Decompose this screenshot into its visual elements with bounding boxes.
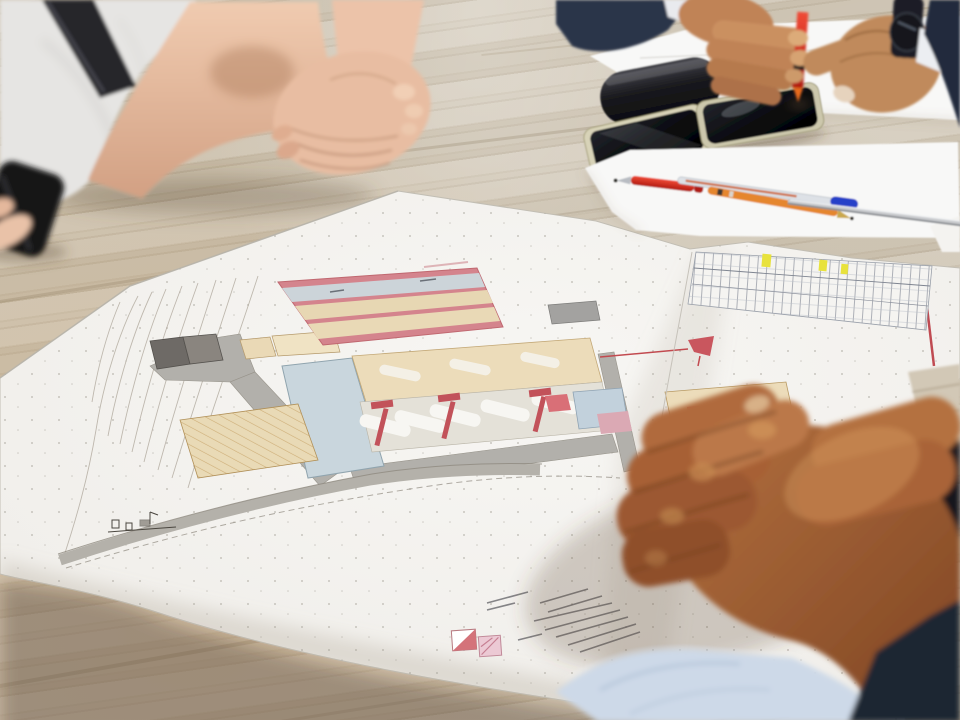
underarm-shadow (210, 46, 294, 98)
person-top-left (0, 0, 445, 214)
knuckle-highlight (660, 508, 684, 524)
scene-artwork (0, 0, 960, 720)
highlight-cell (841, 264, 849, 275)
pen-stripe (717, 189, 723, 196)
knuckle (393, 84, 415, 100)
highlight-cell (818, 260, 827, 272)
pink-block-small (597, 411, 632, 434)
knuckle (401, 123, 417, 135)
gray-building (548, 301, 600, 324)
knuckle-highlight (645, 550, 667, 566)
red-block-small (545, 394, 571, 412)
photo-scene (0, 0, 960, 720)
knuckle-highlight (748, 421, 776, 439)
fingertip (788, 30, 808, 46)
highlight-cell (761, 254, 771, 268)
fingertip (785, 69, 803, 83)
knuckle (405, 104, 423, 118)
legend-swatch-red (451, 629, 476, 651)
knuckle-highlight (689, 463, 715, 481)
legend-swatch-pink (478, 635, 501, 656)
